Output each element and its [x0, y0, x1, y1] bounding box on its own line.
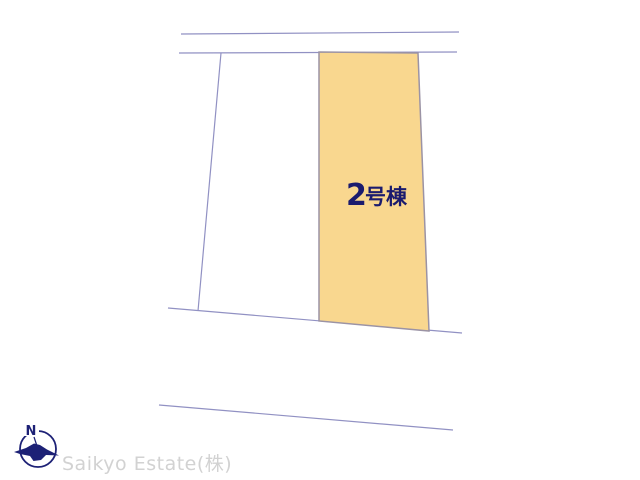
- site-plan-image: 2 号棟 N Saikyo Estate(株): [0, 0, 640, 480]
- road-edge-bottom: [159, 405, 453, 430]
- road-edge-top-outer: [181, 32, 459, 34]
- parcel-1-left-boundary: [198, 53, 221, 311]
- site-plan-canvas: 2 号棟 N Saikyo Estate(株): [0, 0, 640, 480]
- north-compass-icon: N: [14, 421, 59, 467]
- compass-north-letter: N: [26, 424, 37, 439]
- parcel-2-label-suffix: 号棟: [365, 185, 408, 209]
- company-watermark: Saikyo Estate(株): [62, 453, 232, 475]
- parcel-2-label-number: 2: [346, 178, 367, 213]
